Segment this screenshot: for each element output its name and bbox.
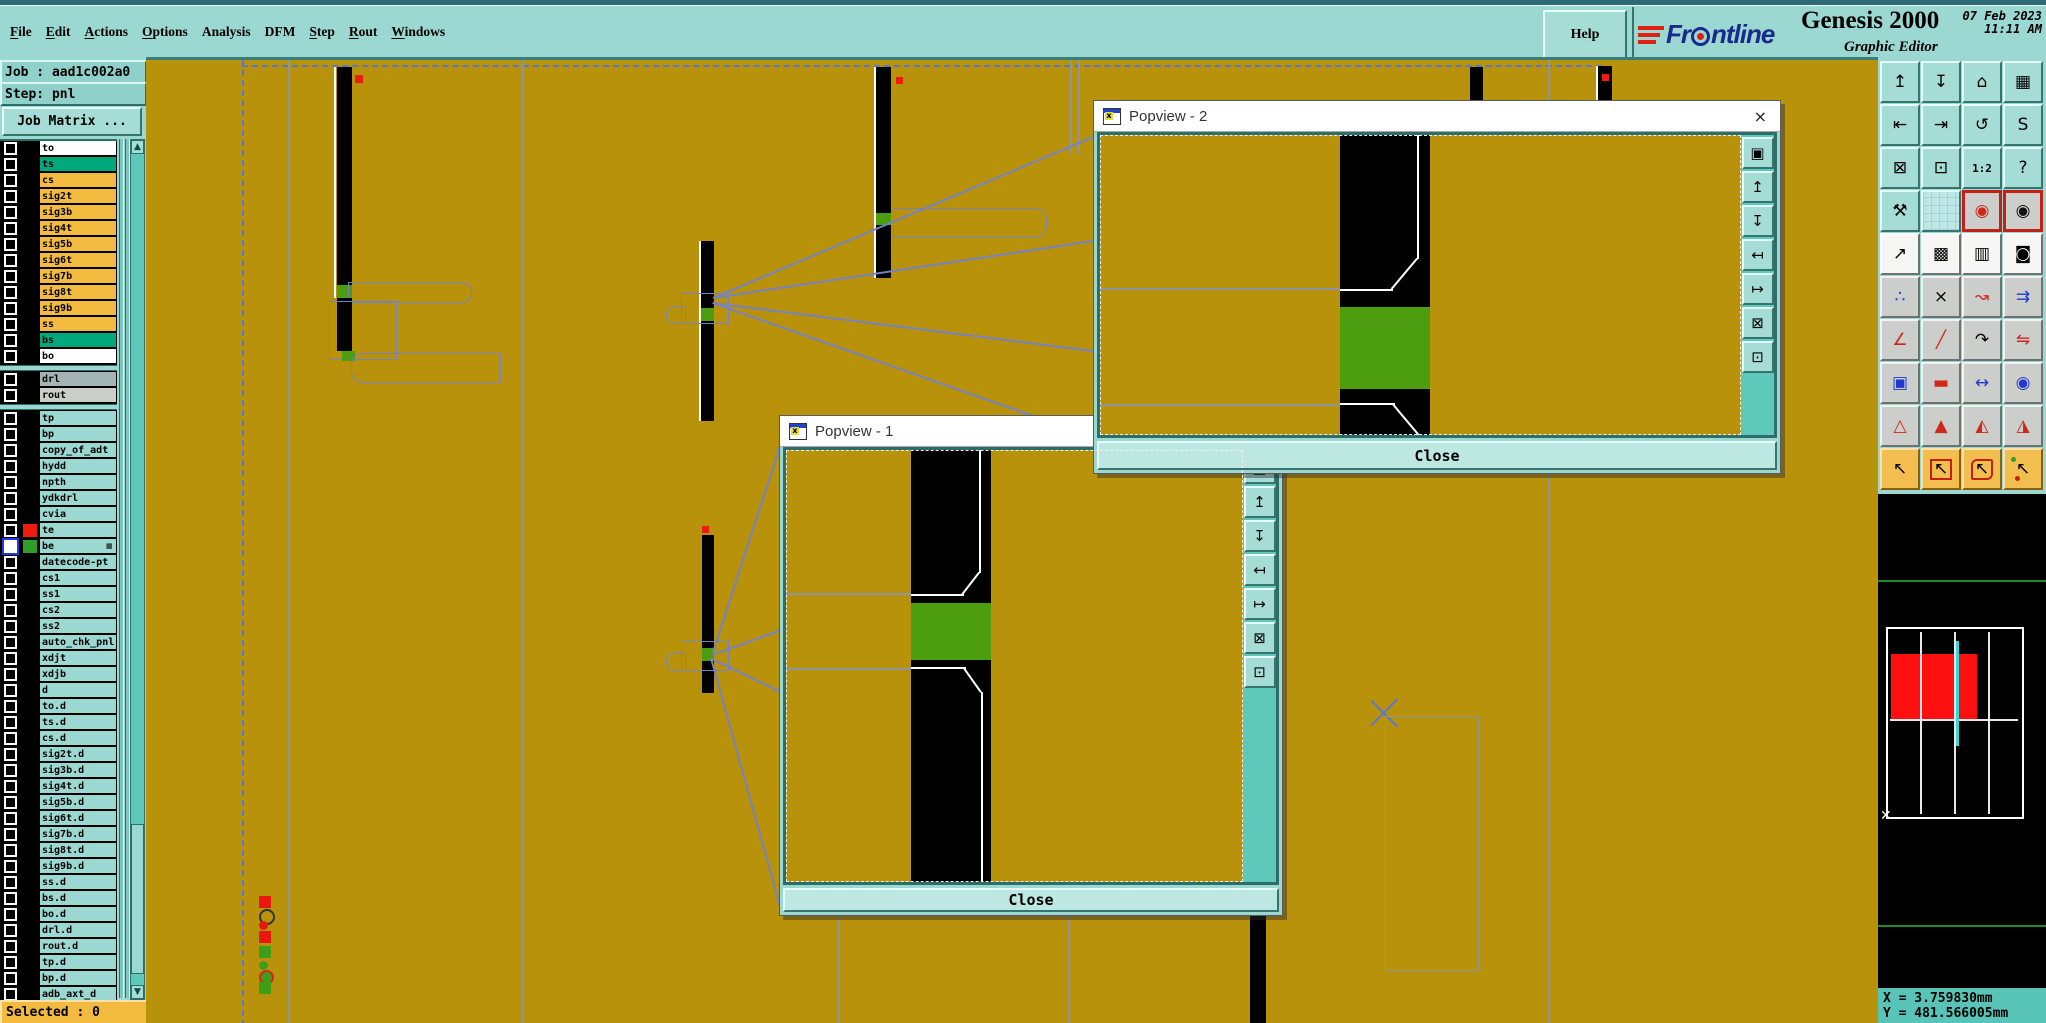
select-frame-icon: ↖ <box>1930 459 1952 480</box>
layer-checkbox[interactable] <box>4 828 17 841</box>
mirror-flip-button[interactable]: ⇋ <box>2003 319 2043 361</box>
layer-checkbox[interactable] <box>4 972 17 985</box>
layer-name[interactable]: ss2 <box>39 618 117 634</box>
layer-row-sig6t-d[interactable]: sig6t.d <box>0 811 117 825</box>
rout-angle-1-button[interactable]: △ <box>1880 405 1920 447</box>
layer-name[interactable]: sig7b.d <box>39 826 117 842</box>
layer-checkbox[interactable] <box>4 956 17 969</box>
layer-row-cs1[interactable]: cs1 <box>0 571 117 585</box>
layer-name[interactable]: bp <box>39 426 117 442</box>
layer-row-auto-chk-pnl[interactable]: auto_chk_pnl <box>0 635 117 649</box>
zoom-extents-button[interactable]: ⊠ <box>1244 622 1276 654</box>
layer-row-sig9b[interactable]: sig9b <box>0 301 117 315</box>
divider-line <box>1878 925 2046 927</box>
popview-link-line <box>713 240 1093 298</box>
rout-angle-2-button[interactable]: ▲ <box>1921 405 1961 447</box>
layer-row-sig2t-d[interactable]: sig2t.d <box>0 747 117 761</box>
layer-name[interactable]: cs.d <box>39 730 117 746</box>
layer-checkbox[interactable] <box>4 892 17 905</box>
popview-2-title: Popview - 2 <box>1129 108 1207 125</box>
previous-view-button[interactable]: ↺ <box>1962 104 2002 146</box>
layer-checkbox[interactable] <box>4 222 17 235</box>
layer-color-chip <box>23 190 37 203</box>
layer-row-sig5b-d[interactable]: sig5b.d <box>0 795 117 809</box>
layer-row-bp[interactable]: bp <box>0 427 117 441</box>
zoom-center-button[interactable]: ⊡ <box>1742 341 1774 373</box>
shape-transform-button[interactable]: ↗ <box>1880 233 1920 275</box>
layer-checkbox[interactable] <box>4 142 17 155</box>
rout-angle-3-button[interactable]: ◭ <box>1962 405 2002 447</box>
setup-tools-icon: ⚒ <box>1892 203 1907 220</box>
divider-line <box>1878 580 2046 582</box>
layer-checkbox[interactable] <box>4 428 17 441</box>
layer-checkbox[interactable] <box>4 604 17 617</box>
layer-row-ss-d[interactable]: ss.d <box>0 875 117 889</box>
layer-color-chip <box>23 444 37 457</box>
layer-name[interactable]: sig2t <box>39 188 117 204</box>
pan-left-icon: ⇤ <box>1893 117 1907 134</box>
popview-2-titlebar[interactable]: Popview - 2 × <box>1094 101 1780 132</box>
layer-row-sig3b-d[interactable]: sig3b.d <box>0 763 117 777</box>
layer-name[interactable]: sig4t.d <box>39 778 117 794</box>
layer-checkbox[interactable] <box>4 668 17 681</box>
layer-name[interactable]: drl.d <box>39 922 117 938</box>
layer-checkbox[interactable] <box>4 556 17 569</box>
measure-ruler-button[interactable]: ▥ <box>1962 233 2002 275</box>
zoom-center-button[interactable]: ⊡ <box>1921 147 1961 189</box>
popview-window-button[interactable]: ▣ <box>1742 137 1774 169</box>
layer-checkbox[interactable] <box>4 206 17 219</box>
mirror-flip-icon: ⇋ <box>2016 332 2030 349</box>
panel-overview-map[interactable]: ✕ <box>1886 627 2024 819</box>
layer-checkbox[interactable] <box>4 876 17 889</box>
layer-row-sig5b[interactable]: sig5b <box>0 237 117 251</box>
layer-row-npth[interactable]: npth <box>0 475 117 489</box>
highlight-marker <box>896 77 903 84</box>
layer-checkbox[interactable] <box>4 254 17 267</box>
layer-name[interactable]: auto_chk_pnl <box>39 634 117 650</box>
move-feature-button[interactable]: ↝ <box>1962 276 2002 318</box>
rout-angle-2-icon: ▲ <box>1934 418 1947 435</box>
layer-name[interactable]: te <box>39 522 117 538</box>
layer-row-to-d[interactable]: to.d <box>0 699 117 713</box>
layer-name[interactable]: sig7b <box>39 268 117 284</box>
zoom-extents-button[interactable]: ⊠ <box>1742 307 1774 339</box>
net-nodes-button[interactable]: ∴ <box>1880 276 1920 318</box>
section-line <box>1100 404 1340 406</box>
product-title: Genesis 2000 <box>1801 7 1939 35</box>
feature-query-button[interactable]: ? <box>2003 147 2043 189</box>
layer-color-chip <box>23 142 37 155</box>
map-origin-x-icon: ✕ <box>1880 809 1894 823</box>
layer-color-chip <box>23 668 37 681</box>
draw-line-button[interactable]: ╱ <box>1921 319 1961 361</box>
layer-checkbox[interactable] <box>4 508 17 521</box>
zoom-extents-button[interactable]: ⊠ <box>1880 147 1920 189</box>
previous-view-icon: ↺ <box>1975 117 1989 134</box>
layer-row-cs[interactable]: cs <box>0 173 117 187</box>
layer-checkbox[interactable] <box>4 700 17 713</box>
menu-item-rout[interactable]: Rout <box>347 22 380 42</box>
layer-checkbox[interactable] <box>4 318 17 331</box>
layer-name[interactable]: sig6t.d <box>39 810 117 826</box>
shape-transform-icon: ↗ <box>1893 246 1907 263</box>
layer-name[interactable]: tp <box>39 410 117 426</box>
menu-item-options[interactable]: Options <box>140 22 190 42</box>
layer-color-chip <box>23 604 37 617</box>
layer-row-sig7b-d[interactable]: sig7b.d <box>0 827 117 841</box>
popview-1-view[interactable] <box>786 450 1243 882</box>
menu-item-windows[interactable]: Windows <box>389 22 447 42</box>
highlight-marker <box>355 75 363 83</box>
shift-up-button[interactable]: ↥ <box>1244 486 1276 518</box>
layer-row-bp-d[interactable]: bp.d <box>0 971 117 985</box>
layer-row-sig8t-d[interactable]: sig8t.d <box>0 843 117 857</box>
layer-checkbox[interactable] <box>4 924 17 937</box>
layer-checkbox[interactable] <box>4 652 17 665</box>
layer-row-te[interactable]: te <box>0 523 117 537</box>
layer-checkbox[interactable] <box>4 476 17 489</box>
layer-row-drl[interactable]: drl <box>0 372 117 386</box>
shift-down-button[interactable]: ↧ <box>1742 205 1774 237</box>
shift-left-button[interactable]: ↤ <box>1742 239 1774 271</box>
layer-color-chip <box>23 844 37 857</box>
layer-name[interactable]: to.d <box>39 698 117 714</box>
shift-left-button[interactable]: ↤ <box>1244 554 1276 586</box>
layer-checkbox[interactable] <box>4 620 17 633</box>
select-frame-button[interactable]: ↖ <box>1921 448 1961 490</box>
layer-row-rout[interactable]: rout <box>0 388 117 402</box>
menu-item-dfm[interactable]: DFM <box>263 22 298 42</box>
layer-row-sig4t[interactable]: sig4t <box>0 221 117 235</box>
window-xy-button[interactable]: ▦ <box>2003 61 2043 103</box>
layer-checkbox[interactable] <box>4 389 17 402</box>
layer-row-copy-of-adt[interactable]: copy_of_adt <box>0 443 117 457</box>
layer-name[interactable]: sig4t <box>39 220 117 236</box>
layer-row-bo-d[interactable]: bo.d <box>0 907 117 921</box>
layer-checkbox[interactable] <box>4 908 17 921</box>
layer-name[interactable]: to <box>39 140 117 156</box>
scroll-up-icon[interactable]: ▲ <box>131 140 144 154</box>
product-subtitle: Graphic Editor <box>1844 39 1938 56</box>
surface-shapes-button[interactable]: ◉ <box>2003 362 2043 404</box>
layer-row-sig7b[interactable]: sig7b <box>0 269 117 283</box>
layer-row-be[interactable]: be▦ <box>0 539 117 553</box>
serpentine-route-button[interactable]: S <box>2003 104 2043 146</box>
select-net-button[interactable]: ↖ <box>2003 448 2043 490</box>
layer-row-adb-axt-d[interactable]: adb_axt_d <box>0 987 117 1001</box>
layer-name[interactable]: sig8t.d <box>39 842 117 858</box>
layer-checkbox[interactable] <box>4 716 17 729</box>
layer-row-rout-d[interactable]: rout.d <box>0 939 117 953</box>
copy-feature-icon: ⇉ <box>2016 289 2030 306</box>
copy-to-layer-button[interactable]: ▣ <box>1880 362 1920 404</box>
layer-row-ss1[interactable]: ss1 <box>0 587 117 601</box>
layer-checkbox[interactable] <box>4 302 17 315</box>
zoom-center-icon: ⊡ <box>1934 160 1948 177</box>
popview-1-window: Popview - 1 × ▣↥↧↤↦⊠⊡ Close <box>779 415 1283 916</box>
popview-2-view[interactable] <box>1100 135 1741 435</box>
menu-item-analysis[interactable]: Analysis <box>200 22 253 42</box>
layer-name[interactable]: sig8t <box>39 284 117 300</box>
layer-name[interactable]: ts.d <box>39 714 117 730</box>
layer-color-chip <box>23 732 37 745</box>
pad-select-button[interactable]: ◙ <box>2003 233 2043 275</box>
attribute-marker-icon <box>259 921 268 930</box>
layer-row-to[interactable]: to <box>0 141 117 155</box>
rout-angle-3-icon: ◭ <box>1975 418 1988 435</box>
layer-color-chip <box>23 636 37 649</box>
layer-row-bs-d[interactable]: bs.d <box>0 891 117 905</box>
menu-item-file[interactable]: File <box>8 22 34 42</box>
layer-name[interactable]: bs <box>39 332 117 348</box>
pan-right-button[interactable]: ⇥ <box>1921 104 1961 146</box>
layer-name[interactable]: sig3b.d <box>39 762 117 778</box>
layer-name[interactable]: d <box>39 682 117 698</box>
layer-name[interactable]: ydkdrl <box>39 490 117 506</box>
layer-row-bs[interactable]: bs <box>0 333 117 347</box>
layer-name[interactable]: drl <box>39 371 117 387</box>
layer-color-chip <box>23 796 37 809</box>
grid-toggle-button[interactable] <box>1921 190 1961 232</box>
layer-checkbox[interactable] <box>4 988 17 1001</box>
layer-row-datecode-pt[interactable]: datecode-pt <box>0 555 117 569</box>
layer-checkbox[interactable] <box>4 732 17 745</box>
shift-right-button[interactable]: ↦ <box>1244 588 1276 620</box>
copy-feature-button[interactable]: ⇉ <box>2003 276 2043 318</box>
home-view-button[interactable]: ⌂ <box>1962 61 2002 103</box>
layer-checkbox[interactable] <box>4 524 17 537</box>
layer-scrollbar[interactable]: ▲ ▼ <box>130 139 145 1000</box>
layer-row-drl-d[interactable]: drl.d <box>0 923 117 937</box>
close-icon[interactable]: × <box>1750 107 1771 126</box>
layer-checkbox[interactable] <box>4 572 17 585</box>
layer-name[interactable]: sig5b.d <box>39 794 117 810</box>
layer-name[interactable]: sig2t.d <box>39 746 117 762</box>
pan-left-button[interactable]: ⇤ <box>1880 104 1920 146</box>
popview-2-close-button[interactable]: Close <box>1097 441 1777 470</box>
netlist-cur-button[interactable]: ◉ <box>2003 190 2043 232</box>
layer-name[interactable]: tp.d <box>39 954 117 970</box>
select-single-button[interactable]: ↖ <box>1880 448 1920 490</box>
popview-2-window: Popview - 2 × ▣↥↧↤↦⊠⊡ Close <box>1093 100 1781 474</box>
layer-name[interactable]: bs.d <box>39 890 117 906</box>
layer-row-sig6t[interactable]: sig6t <box>0 253 117 267</box>
layer-name[interactable]: cvia <box>39 506 117 522</box>
layer-name[interactable]: sig9b <box>39 300 117 316</box>
trace-width-icon: ▬ <box>1933 375 1949 392</box>
layer-checkbox[interactable] <box>4 412 17 425</box>
layer-list: totscssig2tsig3bsig4tsig5bsig6tsig7bsig8… <box>0 139 117 1002</box>
layer-name[interactable]: cs <box>39 172 117 188</box>
layer-checkbox[interactable] <box>4 636 17 649</box>
menu-item-edit[interactable]: Edit <box>44 22 73 42</box>
layer-row-cs2[interactable]: cs2 <box>0 603 117 617</box>
layer-checkbox[interactable] <box>4 812 17 825</box>
layer-row-sig8t[interactable]: sig8t <box>0 285 117 299</box>
layer-name[interactable]: cs2 <box>39 602 117 618</box>
copper-outline <box>981 692 983 882</box>
menu-item-step[interactable]: Step <box>307 22 337 42</box>
layer-row-bo[interactable]: bo <box>0 349 117 363</box>
tool-panel: ↥↧⌂▦⇤⇥↺S⊠⊡1:2?⚒◉◉↗▩▥◙∴×↝⇉∠╱↷⇋▣▬↔◉△▲◭◮↖↖↖… <box>1878 57 2046 1023</box>
attribute-marker-icon <box>259 946 271 958</box>
draw-arc-icon: ↷ <box>1975 332 1989 349</box>
layer-name[interactable]: sig5b <box>39 236 117 252</box>
layer-row-cvia[interactable]: cvia <box>0 507 117 521</box>
layer-color-chip <box>23 158 37 171</box>
layer-name[interactable]: bo <box>39 348 117 364</box>
setup-tools-button[interactable]: ⚒ <box>1880 190 1920 232</box>
layer-checkbox[interactable] <box>4 492 17 505</box>
layer-checkbox[interactable] <box>4 460 17 473</box>
layer-row-ts-d[interactable]: ts.d <box>0 715 117 729</box>
layer-checkbox[interactable] <box>4 373 17 386</box>
rout-angle-4-button[interactable]: ◮ <box>2003 405 2043 447</box>
layer-row-tp[interactable]: tp <box>0 411 117 425</box>
layer-row-sig2t[interactable]: sig2t <box>0 189 117 203</box>
shift-up-button[interactable]: ↥ <box>1742 171 1774 203</box>
layer-name[interactable]: datecode-pt <box>39 554 117 570</box>
layer-color-chip <box>23 572 37 585</box>
layer-row-tp-d[interactable]: tp.d <box>0 955 117 969</box>
layer-checkbox[interactable] <box>4 764 17 777</box>
copper-trace <box>876 67 891 213</box>
zoom-center-button[interactable]: ⊡ <box>1244 656 1276 688</box>
layer-color-chip <box>23 270 37 283</box>
layer-row-sig9b-d[interactable]: sig9b.d <box>0 859 117 873</box>
layer-checkbox[interactable] <box>4 334 17 347</box>
layer-name[interactable]: rout <box>39 387 117 403</box>
layer-name[interactable]: bo.d <box>39 906 117 922</box>
layer-checkbox[interactable] <box>4 860 17 873</box>
layer-color-chip <box>23 174 37 187</box>
layer-color-chip <box>23 254 37 267</box>
layer-color-chip <box>23 988 37 1001</box>
measure-angle-icon: ∠ <box>1892 332 1907 349</box>
trace-width-button[interactable]: ▬ <box>1921 362 1961 404</box>
layer-checkbox[interactable] <box>4 270 17 283</box>
layer-row-ss[interactable]: ss <box>0 317 117 331</box>
layer-name[interactable]: sig6t <box>39 252 117 268</box>
layer-name[interactable]: cs1 <box>39 570 117 586</box>
layer-color-chip <box>23 716 37 729</box>
layer-row-sig3b[interactable]: sig3b <box>0 205 117 219</box>
job-matrix-button[interactable]: Job Matrix ... <box>2 107 142 136</box>
highlight-marker <box>702 526 709 533</box>
measure-distance-button[interactable]: ↔ <box>1962 362 2002 404</box>
layer-checkbox[interactable] <box>4 350 17 363</box>
layer-name[interactable]: hydd <box>39 458 117 474</box>
layer-name[interactable]: xdjb <box>39 666 117 682</box>
scrollbar-thumb[interactable] <box>131 824 144 974</box>
layer-name[interactable]: ss1 <box>39 586 117 602</box>
layer-row-ss2[interactable]: ss2 <box>0 619 117 633</box>
tool-grid: ↥↧⌂▦⇤⇥↺S⊠⊡1:2?⚒◉◉↗▩▥◙∴×↝⇉∠╱↷⇋▣▬↔◉△▲◭◮↖↖↖… <box>1880 61 2045 490</box>
layer-checkbox[interactable] <box>4 238 17 251</box>
shift-right-button[interactable]: ↦ <box>1742 273 1774 305</box>
delete-feature-icon: × <box>1934 289 1948 306</box>
zoom-ratio-1-2-button[interactable]: 1:2 <box>1962 147 2002 189</box>
pad-outline <box>348 282 472 303</box>
layer-checkbox[interactable] <box>4 684 17 697</box>
layer-name[interactable]: sig9b.d <box>39 858 117 874</box>
popview-1-frame: ▣↥↧↤↦⊠⊡ <box>783 447 1279 885</box>
layer-checkbox[interactable] <box>4 540 17 553</box>
layer-row-xdjb[interactable]: xdjb <box>0 667 117 681</box>
shift-down-button[interactable]: ↧ <box>1244 520 1276 552</box>
layer-compare-button[interactable]: ▩ <box>1921 233 1961 275</box>
layer-checkbox[interactable] <box>4 158 17 171</box>
window-xy-icon: ▦ <box>2015 74 2031 91</box>
layer-row-xdjt[interactable]: xdjt <box>0 651 117 665</box>
layer-name[interactable]: rout.d <box>39 938 117 954</box>
layer-color-chip <box>23 524 37 537</box>
menu-item-actions[interactable]: Actions <box>83 22 131 42</box>
groove <box>119 139 124 998</box>
delete-feature-button[interactable]: × <box>1921 276 1961 318</box>
attribute-marker-icon <box>259 896 271 908</box>
popview-1-close-button[interactable]: Close <box>783 888 1279 912</box>
layer-row-ts[interactable]: ts <box>0 157 117 171</box>
selection-dash-border <box>786 450 1243 882</box>
layer-name[interactable]: bp.d <box>39 970 117 986</box>
select-polygon-button[interactable]: ↖ <box>1962 448 2002 490</box>
map-highlight-region <box>1891 654 1977 720</box>
layer-checkbox[interactable] <box>4 780 17 793</box>
popview-2-frame: ▣↥↧↤↦⊠⊡ <box>1097 132 1777 438</box>
draw-arc-button[interactable]: ↷ <box>1962 319 2002 361</box>
layer-row-d[interactable]: d <box>0 683 117 697</box>
layer-row-cs-d[interactable]: cs.d <box>0 731 117 745</box>
pan-down-button[interactable]: ↧ <box>1921 61 1961 103</box>
layer-row-ydkdrl[interactable]: ydkdrl <box>0 491 117 505</box>
layer-checkbox[interactable] <box>4 748 17 761</box>
layer-checkbox[interactable] <box>4 286 17 299</box>
scroll-down-icon[interactable]: ▼ <box>131 985 144 999</box>
pad-outline <box>681 293 729 324</box>
layer-name[interactable]: ts <box>39 156 117 172</box>
layer-name[interactable]: npth <box>39 474 117 490</box>
layer-checkbox[interactable] <box>4 174 17 187</box>
netlist-ref-button[interactable]: ◉ <box>1962 190 2002 232</box>
select-net-icon: ↖ <box>2016 461 2030 478</box>
layer-checkbox[interactable] <box>4 940 17 953</box>
pan-up-button[interactable]: ↥ <box>1880 61 1920 103</box>
layer-checkbox[interactable] <box>4 796 17 809</box>
layer-checkbox[interactable] <box>4 844 17 857</box>
layer-name[interactable]: ss <box>39 316 117 332</box>
layer-color-chip <box>23 238 37 251</box>
menu-items: FileEditActionsOptionsAnalysisDFMStepRou… <box>8 6 457 57</box>
layer-row-sig4t-d[interactable]: sig4t.d <box>0 779 117 793</box>
layer-name[interactable]: sig3b <box>39 204 117 220</box>
trace-outline <box>334 67 336 298</box>
layer-name[interactable]: copy_of_adt <box>39 442 117 458</box>
popview-window-icon: ▣ <box>1750 144 1764 162</box>
layer-checkbox[interactable] <box>4 588 17 601</box>
layer-row-hydd[interactable]: hydd <box>0 459 117 473</box>
layer-color-chip <box>23 620 37 633</box>
layer-checkbox[interactable] <box>4 190 17 203</box>
layer-name[interactable]: ss.d <box>39 874 117 890</box>
layer-name[interactable]: xdjt <box>39 650 117 666</box>
popview-link-line <box>712 440 782 652</box>
layer-checkbox[interactable] <box>4 444 17 457</box>
copper-trace <box>337 67 352 285</box>
measure-angle-button[interactable]: ∠ <box>1880 319 1920 361</box>
help-button[interactable]: Help <box>1543 10 1627 59</box>
